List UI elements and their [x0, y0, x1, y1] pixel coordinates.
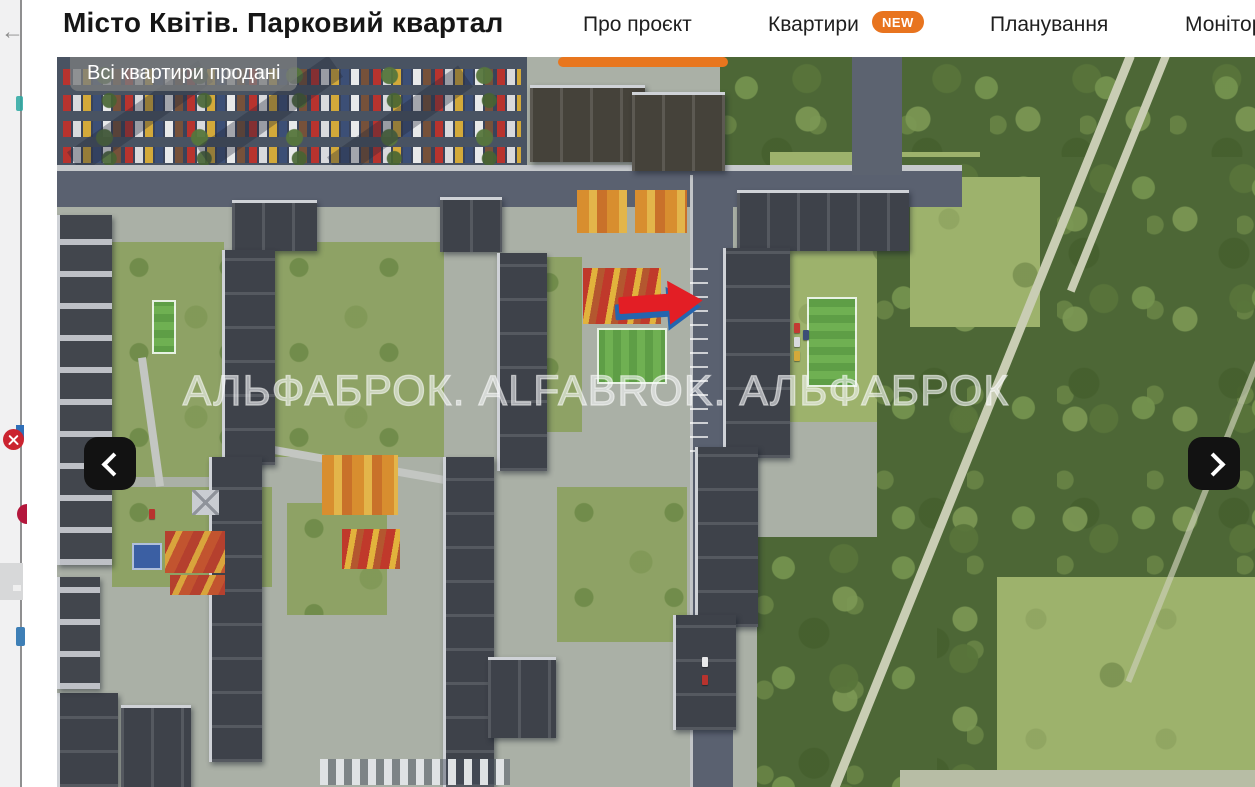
playground	[577, 190, 627, 233]
chevron-right-icon	[1201, 452, 1225, 476]
tab-plans[interactable]: Планування	[990, 13, 1108, 37]
page-title: Місто Квітів. Парковий квартал	[63, 7, 503, 39]
parked-cars-row	[320, 759, 510, 785]
building-block	[530, 85, 645, 162]
gallery-photo-aerial-render: Всі квартири продані АЛЬФАБРОК. ALFABROK…	[57, 57, 1255, 787]
building-block	[57, 577, 100, 689]
pavilion	[192, 490, 219, 515]
street-top	[852, 57, 902, 175]
building-block	[121, 705, 191, 787]
close-widget-icon[interactable]	[3, 429, 24, 450]
football-pitch-small	[152, 300, 176, 354]
building-block	[443, 457, 494, 787]
page: ← Місто Квітів. Парковий квартал Про про…	[0, 0, 1255, 787]
building-block	[488, 657, 556, 738]
carousel-next-button[interactable]	[1188, 437, 1240, 490]
left-edge-panel	[0, 0, 22, 787]
tab-monitoring[interactable]: Моніторинг	[1185, 13, 1255, 37]
building-block	[673, 615, 736, 730]
meadow-bottom-right	[997, 577, 1255, 787]
courtyard-lawn	[557, 487, 687, 642]
clipped-grey-panel	[0, 563, 23, 600]
building-block-arrowed	[723, 248, 790, 458]
carousel-prev-button[interactable]	[84, 437, 136, 490]
park-road-bottom	[900, 770, 1255, 787]
sport-court-blue	[132, 543, 162, 570]
tab-about-project[interactable]: Про проєкт	[583, 13, 692, 37]
car	[149, 509, 155, 519]
building-block	[695, 447, 758, 627]
building-block	[497, 253, 547, 471]
building-block	[632, 92, 725, 171]
building-block	[232, 200, 317, 251]
building-block	[440, 197, 502, 252]
car	[702, 657, 708, 667]
car	[794, 351, 800, 361]
chevron-left-icon	[101, 452, 125, 476]
sport-court-red	[165, 531, 225, 573]
header: Місто Квітів. Парковий квартал Про проєк…	[22, 0, 1255, 57]
courtyard-lawn	[272, 242, 444, 457]
clipped-telegram-icon[interactable]	[16, 627, 25, 646]
sold-out-badge: Всі квартири продані	[70, 57, 297, 91]
car	[794, 337, 800, 347]
building-block	[222, 250, 275, 465]
playground	[342, 529, 400, 569]
clipped-messenger-icon[interactable]	[16, 96, 23, 111]
building-block-arrowed	[737, 190, 909, 251]
watermark-text: АЛЬФАБРОК. ALFABROK. АЛЬФАБРОК	[57, 367, 1195, 416]
car	[803, 330, 809, 340]
playground	[635, 190, 687, 233]
back-arrow-icon[interactable]: ←	[1, 18, 23, 45]
new-badge[interactable]: NEW	[872, 11, 924, 33]
playground	[322, 455, 398, 515]
active-tab-underline	[558, 57, 728, 67]
sport-court-red	[170, 575, 225, 595]
car	[702, 675, 708, 685]
building-pointer-arrow	[615, 276, 714, 340]
tab-apartments[interactable]: Квартири	[768, 13, 859, 37]
car	[794, 323, 800, 333]
building-block	[57, 693, 118, 787]
